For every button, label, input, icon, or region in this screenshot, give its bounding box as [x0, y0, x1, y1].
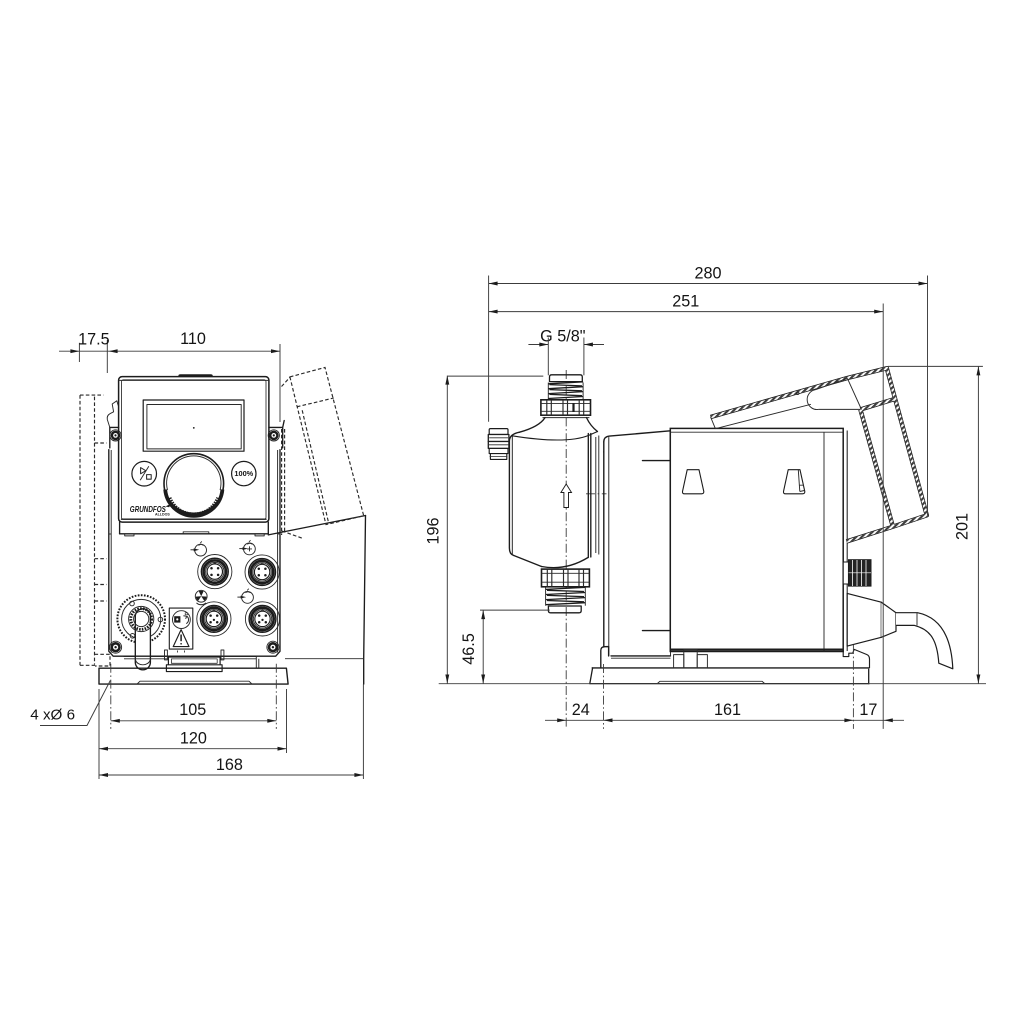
svg-text:24: 24	[572, 701, 590, 719]
svg-text:ALLDOS: ALLDOS	[155, 512, 170, 516]
svg-text:46.5: 46.5	[460, 633, 478, 665]
svg-text:G 5/8": G 5/8"	[540, 327, 586, 345]
svg-text:161: 161	[714, 701, 741, 719]
svg-text:168: 168	[216, 756, 243, 774]
svg-text:100%: 100%	[234, 469, 253, 478]
svg-text:201: 201	[954, 513, 972, 540]
svg-text:251: 251	[672, 293, 699, 311]
svg-text:17.5: 17.5	[78, 330, 110, 348]
svg-text:280: 280	[694, 264, 721, 282]
svg-text:110: 110	[180, 330, 206, 348]
svg-text:196: 196	[425, 517, 443, 544]
svg-text:105: 105	[179, 701, 206, 719]
svg-text:17: 17	[859, 701, 877, 719]
svg-text:120: 120	[180, 730, 207, 748]
svg-text:4 xØ 6: 4 xØ 6	[30, 706, 75, 723]
